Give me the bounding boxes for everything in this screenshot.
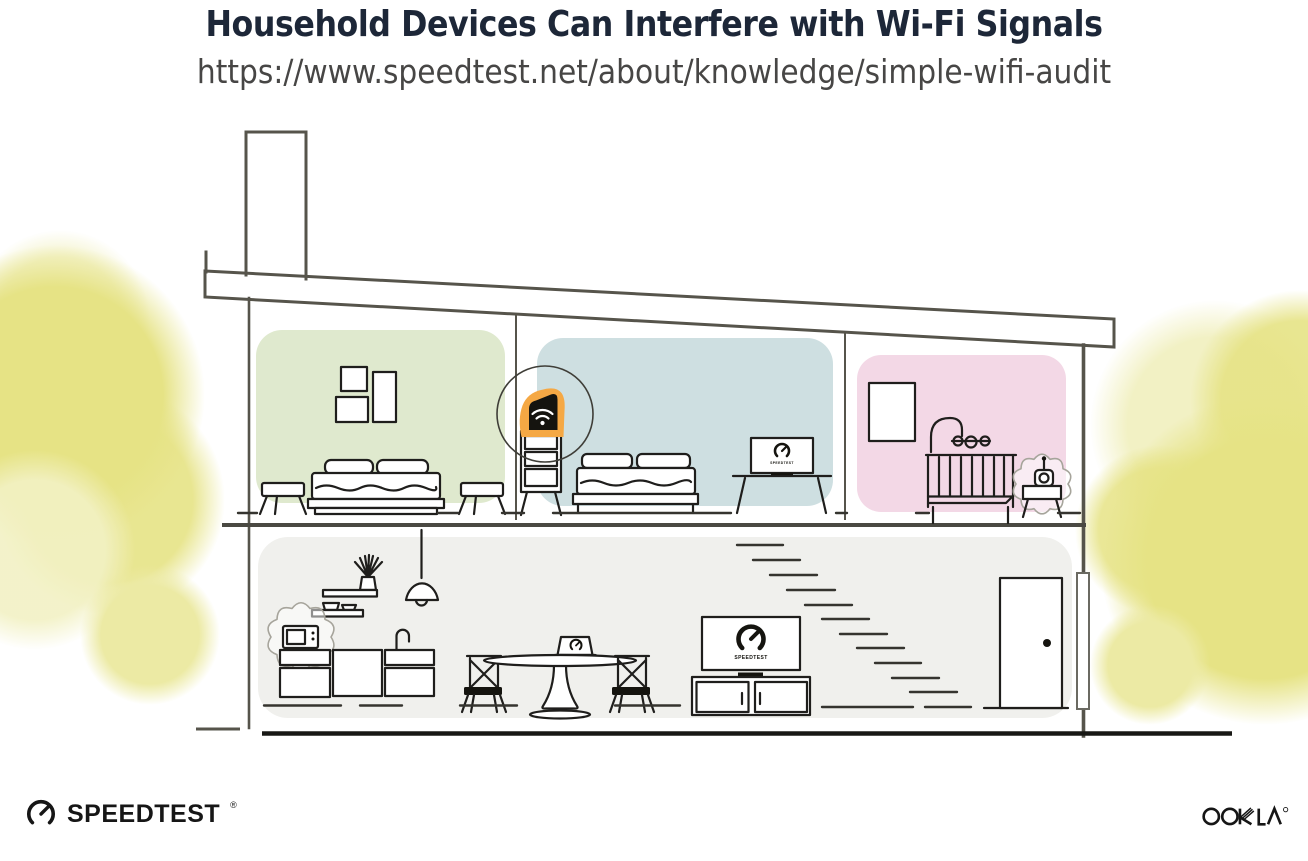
house-illustration: SPEEDTEST: [0, 0, 1308, 861]
speedtest-gauge-icon: [24, 797, 58, 831]
svg-text:SPEEDTEST: SPEEDTEST: [734, 655, 767, 661]
microwave-icon: [283, 626, 318, 648]
wall-frame-icon: [341, 367, 367, 391]
ookla-logo: [1202, 801, 1292, 834]
doorknob-icon: [1043, 639, 1051, 647]
speedtest-logo: SPEEDTEST ®: [24, 797, 237, 831]
wall-frame-icon: [336, 397, 368, 422]
wall-frame-icon: [869, 383, 915, 441]
wall-frame-icon: [373, 372, 396, 422]
tree-left: [0, 230, 225, 705]
tree-right: [1075, 290, 1308, 725]
registered-mark: ®: [230, 800, 237, 810]
media-console-icon: [692, 677, 810, 715]
downspout: [1077, 573, 1089, 709]
bed-icon: [308, 460, 444, 514]
infographic-page: Household Devices Can Interfere with Wi-…: [0, 0, 1308, 861]
svg-text:SPEEDTEST: SPEEDTEST: [770, 461, 794, 465]
registered-mark: [1283, 807, 1287, 811]
ookla-wordmark: [1202, 801, 1292, 829]
chimney: [246, 132, 306, 279]
speedtest-wordmark: SPEEDTEST: [67, 797, 220, 831]
living-room-tv: SPEEDTEST: [702, 617, 800, 676]
shelf-icon: [323, 590, 377, 597]
